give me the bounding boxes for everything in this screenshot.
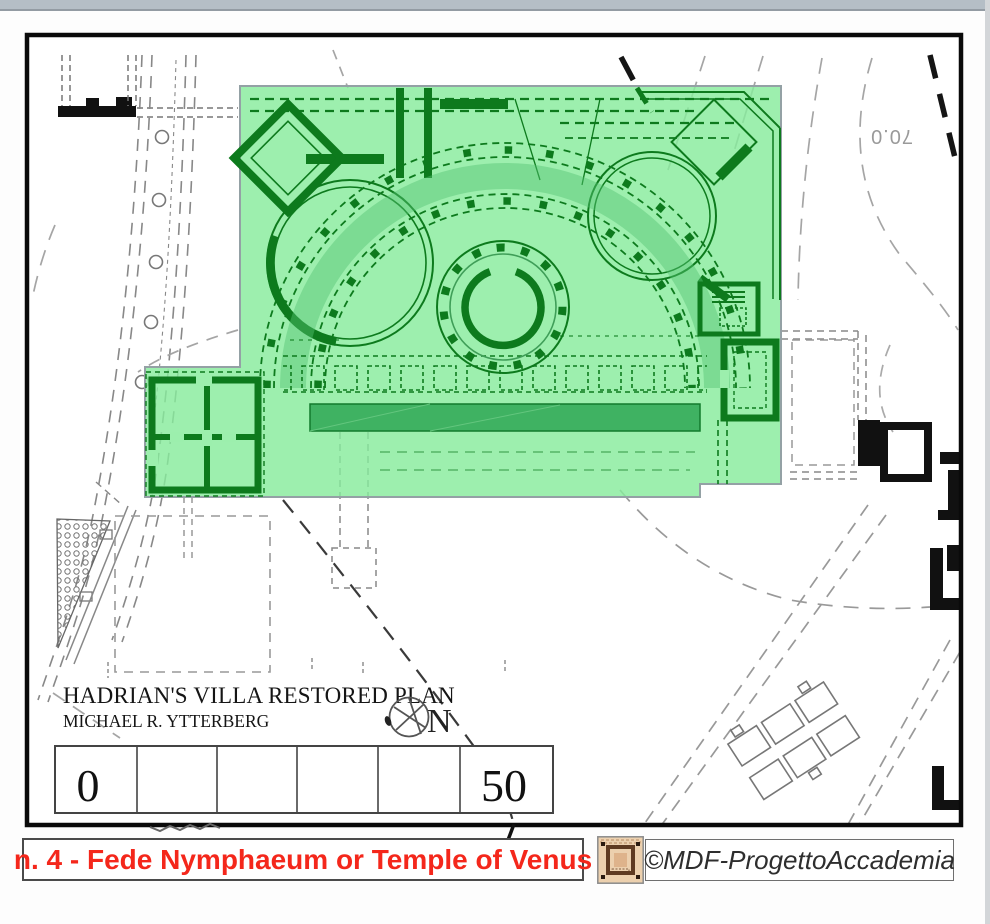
scale-start-label: 0 (77, 760, 100, 811)
caption-label: n. 4 - Fede Nymphaeum or Temple of Venus (14, 844, 592, 876)
credit-label: ©MDF-ProgettoAccademia (644, 845, 955, 876)
credit-box: ©MDF-ProgettoAccademia (645, 839, 954, 881)
north-label: N (427, 703, 452, 740)
scale-end-label: 50 (481, 760, 527, 811)
plan-title: HADRIAN'S VILLA RESTORED PLAN (63, 683, 455, 708)
mosaic-plan-logo-icon (597, 836, 644, 884)
chord-room-row (283, 356, 707, 392)
hadrians-villa-plan-map: 0 50 HADRIAN'S VILLA RESTORED PLAN MICHA… (0, 0, 990, 924)
plan-content: 0 50 HADRIAN'S VILLA RESTORED PLAN MICHA… (29, 37, 964, 830)
window-right-strip (985, 0, 990, 924)
caption-box: n. 4 - Fede Nymphaeum or Temple of Venus (22, 838, 584, 881)
scanned-plan-page: 0 50 HADRIAN'S VILLA RESTORED PLAN MICHA… (0, 0, 990, 924)
contour-elevation-label: 70.0 (870, 125, 913, 147)
plan-author: MICHAEL R. YTTERBERG (63, 711, 270, 731)
window-top-strip (0, 0, 990, 11)
scale-bar (55, 746, 553, 813)
